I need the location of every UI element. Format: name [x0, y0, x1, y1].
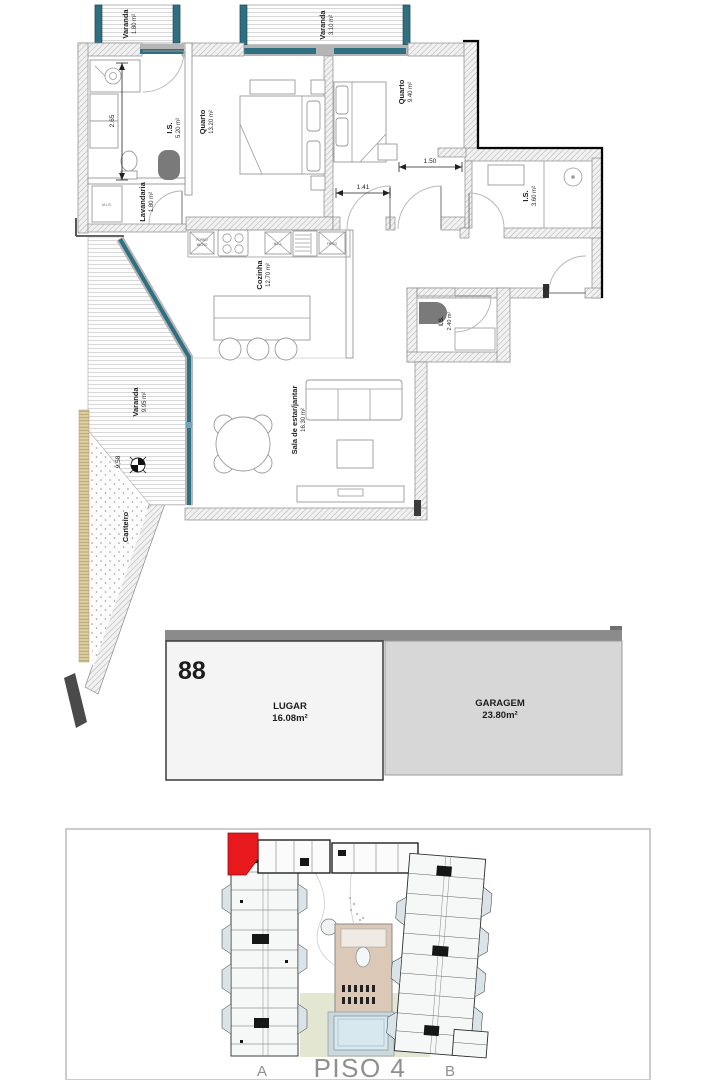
room-area: 5.20 m²	[176, 118, 182, 138]
wing-a-label: A	[257, 1063, 267, 1080]
dim-value: 1.41	[357, 184, 370, 191]
room-cozinha: FORNO MICRO M.L.L. FR	[188, 230, 350, 360]
balcony-door	[140, 44, 184, 92]
room-quarto-2: Quarto 9.40 m²	[334, 79, 414, 162]
corridor-doors	[347, 186, 504, 229]
room-area: 3.60 m²	[532, 186, 538, 206]
room-label: Cozinha 12.70 m²	[255, 260, 272, 290]
stool	[219, 338, 241, 360]
room-label: Lavandaria 1.80 m²	[138, 181, 155, 221]
room-label: Quarto 13.20 m²	[198, 109, 215, 134]
door-jamb	[543, 284, 549, 298]
room-area: 13.20 m²	[209, 110, 215, 134]
room-area: 1.80 m²	[132, 14, 138, 34]
pillow	[307, 141, 320, 171]
floor-label: PISO 4	[314, 1053, 407, 1080]
room-quarto-1: Quarto 13.20 m²	[198, 80, 325, 190]
room-area: 12.70 m²	[266, 263, 272, 287]
rack-symbol	[293, 231, 317, 256]
room-name: Quarto	[198, 109, 207, 134]
room-label: Quarto 9.40 m²	[397, 79, 414, 104]
toilet	[121, 151, 137, 171]
room-area: 1.80 m²	[149, 192, 155, 212]
room-name: Varanda	[131, 387, 140, 417]
hob	[218, 230, 248, 256]
nightstand	[311, 176, 325, 190]
stool	[275, 338, 297, 360]
shelf	[250, 80, 295, 94]
room-name: I.S.	[165, 122, 174, 133]
core-blocks	[258, 840, 418, 873]
coffee-table	[337, 440, 373, 468]
boundary-heavy-line	[463, 41, 602, 298]
room-label: I.S. 3.60 m²	[521, 186, 538, 206]
floor-plan-sheet: Varanda 1.80 m² Varanda 3.10 m²	[0, 0, 727, 1080]
room-lavandaria: M.L.R. Lavandaria 1.80 m²	[92, 181, 182, 224]
balcony-post	[95, 5, 102, 43]
oven-label: FORNO	[196, 238, 208, 242]
balcony-post	[240, 5, 247, 45]
room-label: Sala de estar/jantar 16.30 m²	[290, 386, 307, 455]
washer-label: M.L.R.	[102, 203, 112, 207]
fridge-box: FRIGO	[319, 232, 345, 254]
sofa	[306, 380, 402, 420]
balcony-top-right: Varanda 3.10 m²	[238, 5, 412, 56]
tv-unit	[297, 486, 404, 502]
room-name: Canteiro	[121, 511, 130, 542]
balcony-top-left: Varanda 1.80 m²	[95, 5, 180, 43]
room-name: Sala de estar/jantar	[290, 386, 299, 455]
garage-top-bar	[165, 630, 622, 641]
wing-b-label: B	[445, 1063, 455, 1080]
nightstand	[311, 80, 325, 94]
room-area: 16.30 m²	[301, 408, 307, 432]
entry-door	[543, 256, 586, 298]
room-is-3: I.S. 2.40 m²	[419, 296, 495, 350]
benchmark-symbol	[130, 457, 146, 473]
dining-table	[216, 417, 270, 471]
apartment-plan: Varanda 1.80 m² Varanda 3.10 m²	[64, 5, 602, 728]
unit-number: 88	[178, 657, 206, 685]
sliding-door-glass	[334, 48, 406, 54]
spot-label: LUGAR	[273, 701, 307, 712]
dishwasher-box: M.L.L.	[265, 232, 291, 254]
garage-area: 23.80m²	[482, 710, 517, 721]
boundary-end-cap	[64, 673, 87, 728]
pillow	[336, 86, 348, 114]
dishwasher-label: M.L.L.	[274, 242, 283, 246]
room-label: I.S. 5.20 m²	[165, 118, 182, 138]
balcony-post	[403, 5, 410, 45]
room-name: Lavandaria	[138, 181, 147, 221]
room-name: I.S.	[521, 190, 530, 201]
room-name: Cozinha	[255, 260, 264, 290]
room-label: Canteiro	[121, 511, 130, 542]
room-is-1: I.S. 5.20 m²	[90, 60, 182, 180]
stool	[247, 338, 269, 360]
room-sala: Sala de estar/jantar 16.30 m²	[214, 380, 404, 502]
room-name: Quarto	[397, 79, 406, 104]
garage-plan: 88 LUGAR 16.08m² GARAGEM 23.80m²	[165, 626, 622, 780]
spot-area: 16.08m²	[272, 713, 307, 724]
room-area: 9.40 m²	[408, 82, 414, 102]
vanity	[488, 165, 524, 185]
pillow	[307, 101, 320, 131]
pool	[328, 1012, 394, 1056]
dim-value: 9,58	[115, 455, 122, 468]
room-area: 9.95 m²	[142, 392, 148, 412]
glazing-opening-mark	[186, 422, 192, 428]
dimension-label: 9,58	[115, 455, 122, 468]
fridge-label: FRIGO	[327, 242, 338, 246]
planter-edge	[79, 410, 89, 662]
balcony-post	[173, 5, 180, 43]
pool-house	[335, 924, 392, 1014]
garage-label: GARAGEM	[475, 698, 525, 709]
dim-value: 1.50	[424, 158, 437, 165]
pillow	[336, 118, 348, 146]
bidet	[158, 150, 180, 180]
room-name: Varanda	[318, 10, 327, 40]
dresser	[378, 144, 397, 160]
room-name: Varanda	[121, 9, 130, 39]
oven-box: FORNO MICRO	[190, 232, 214, 254]
room-area: 2.40 m²	[447, 312, 453, 331]
micro-label: MICRO	[197, 243, 208, 247]
room-area: 3.10 m²	[329, 15, 335, 35]
window-band	[140, 44, 184, 49]
sliding-door-glass	[244, 48, 316, 54]
dim-value: 2.65	[109, 114, 116, 127]
site-plan: A PISO 4 B	[66, 829, 650, 1080]
room-is-2: I.S. 3.60 m²	[488, 161, 582, 228]
room-name: I.S.	[438, 316, 445, 326]
wall-end-cap	[414, 500, 421, 516]
